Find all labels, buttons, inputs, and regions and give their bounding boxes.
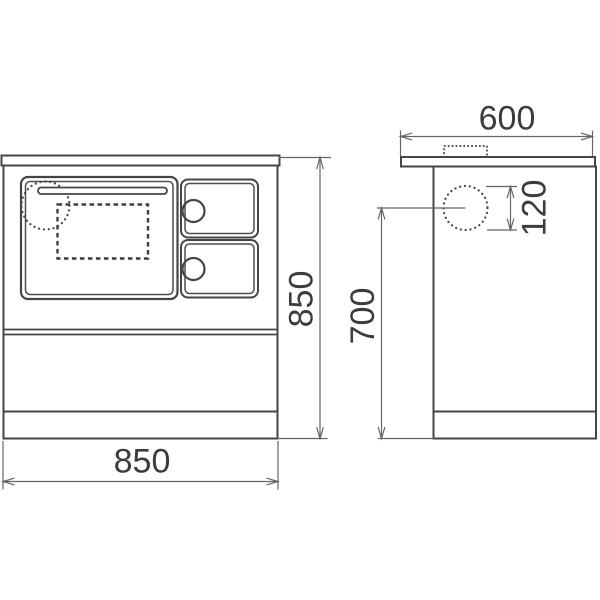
dim-flue-diameter-120: 120 bbox=[486, 180, 554, 237]
control-knob-lower bbox=[183, 258, 205, 280]
flue-collar-dotted bbox=[444, 146, 487, 157]
control-panel-upper-outer bbox=[181, 180, 258, 238]
dim-label-depth: 600 bbox=[479, 100, 536, 138]
dim-label-flue-diameter: 120 bbox=[516, 180, 554, 237]
oven-door-outer bbox=[21, 177, 178, 299]
dim-depth-600: 600 bbox=[401, 100, 593, 157]
control-knob-upper bbox=[183, 200, 205, 222]
side-view bbox=[401, 146, 596, 439]
dim-label-height: 850 bbox=[283, 271, 321, 328]
stove-dimension-drawing: 600 120 700 850 bbox=[0, 0, 600, 600]
control-panel-upper-inner bbox=[185, 184, 254, 234]
firebox-dashed-outline bbox=[58, 205, 149, 259]
front-countertop bbox=[2, 156, 280, 166]
dim-height-850: 850 bbox=[278, 158, 332, 439]
control-panel-lower-outer bbox=[181, 240, 258, 298]
dimension-drawing-page: 600 120 700 850 bbox=[0, 0, 600, 600]
dim-flue-height-700: 700 bbox=[344, 208, 466, 439]
oven-door-inner bbox=[26, 182, 174, 295]
front-body bbox=[4, 166, 278, 439]
control-panel-lower-inner bbox=[185, 244, 254, 294]
front-view bbox=[2, 156, 280, 439]
side-countertop bbox=[401, 157, 595, 167]
dim-width-850: 850 bbox=[3, 441, 278, 490]
dim-label-width: 850 bbox=[114, 443, 171, 481]
door-handle-bar bbox=[38, 188, 167, 195]
dim-label-flue-height: 700 bbox=[344, 288, 382, 345]
